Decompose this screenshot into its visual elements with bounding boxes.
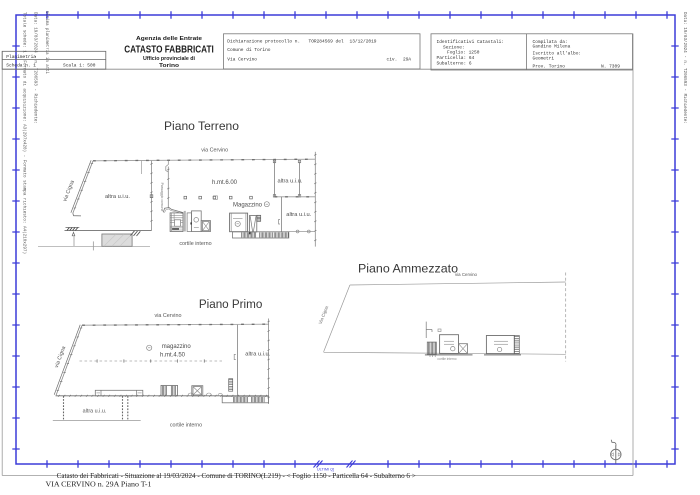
svg-text:cortile interno: cortile interno [179,241,211,247]
svg-text:Planimetria: Planimetria [6,54,36,60]
svg-text:Foglio: 1250: Foglio: 1250 [447,49,480,55]
svg-text:CATASTO FABBRICATI: CATASTO FABBRICATI [124,44,214,55]
svg-text:altra u.i.u.: altra u.i.u. [105,194,130,200]
svg-text:cortile interno: cortile interno [437,357,456,361]
svg-text:via Cervino: via Cervino [155,313,182,319]
svg-text:Scheda n. 1: Scheda n. 1 [6,63,36,69]
svg-text:Scala 1: 500: Scala 1: 500 [63,63,96,69]
svg-text:N. 7309: N. 7309 [601,63,620,69]
svg-text:Prov. Torino: Prov. Torino [533,63,566,69]
svg-text:ULTIMI Q]: ULTIMI Q] [317,467,334,471]
svg-text:Torino: Torino [159,63,180,69]
svg-text:Piano Ammezzato: Piano Ammezzato [358,262,458,276]
svg-text:VIA CERVINO n. 29A Piano T-1: VIA CERVINO n. 29A Piano T-1 [46,480,152,489]
svg-text:Passaggio comune: Passaggio comune [160,183,164,212]
svg-text:via Cigna: via Cigna [62,180,76,203]
svg-text:Piano Terreno: Piano Terreno [164,119,239,133]
svg-text:TOR284569 del: TOR284569 del [309,38,344,44]
svg-text:magazzino: magazzino [162,344,192,350]
svg-text:Via Cervino: Via Cervino [227,57,257,63]
svg-text:civ.: civ. [387,57,398,63]
svg-text:Gandino Milena: Gandino Milena [533,44,571,50]
svg-text:Piano Primo: Piano Primo [199,297,263,311]
svg-text:29A: 29A [403,57,411,63]
svg-text:Via Cigna: Via Cigna [318,305,330,325]
svg-text:via Cervino: via Cervino [455,272,478,277]
svg-text:via Cervino: via Cervino [201,148,228,154]
svg-text:altra u.i.u.: altra u.i.u. [286,212,311,218]
svg-text:Comune di Torino: Comune di Torino [227,47,271,53]
svg-text:Ufficio provinciale di: Ufficio provinciale di [143,56,196,62]
svg-text:h.mt.4.50: h.mt.4.50 [160,352,186,358]
svg-text:Particella: 64: Particella: 64 [437,55,475,61]
svg-text:Dichiarazione protocollo n.: Dichiarazione protocollo n. [227,38,300,44]
svg-text:altra u.i.u.: altra u.i.u. [278,179,303,185]
svg-text:13/12/2019: 13/12/2019 [350,38,377,44]
svg-text:Ultima planimetria in atti: Ultima planimetria in atti [44,11,49,74]
svg-text:Geometri: Geometri [533,55,555,61]
svg-text:Agenzia delle Entrate: Agenzia delle Entrate [136,36,202,42]
svg-text:Magazzino: Magazzino [233,202,263,208]
svg-text:cortile interno: cortile interno [170,422,202,428]
svg-text:Totale schede: 1 - Formato di: Totale schede: 1 - Formato di acquisizio… [22,12,27,254]
svg-text:Subalterno: 6: Subalterno: 6 [437,60,472,66]
svg-text:altra u.i.u.: altra u.i.u. [83,408,107,414]
svg-text:Data: 19/03/2024 - n. T206593: Data: 19/03/2024 - n. T206593 - Richiede… [682,12,687,124]
svg-text:h.mt.6.00: h.mt.6.00 [212,180,238,186]
svg-text:Identificativi Catastali:: Identificativi Catastali: [437,39,505,45]
svg-text:altra u.i.u.: altra u.i.u. [245,351,270,357]
